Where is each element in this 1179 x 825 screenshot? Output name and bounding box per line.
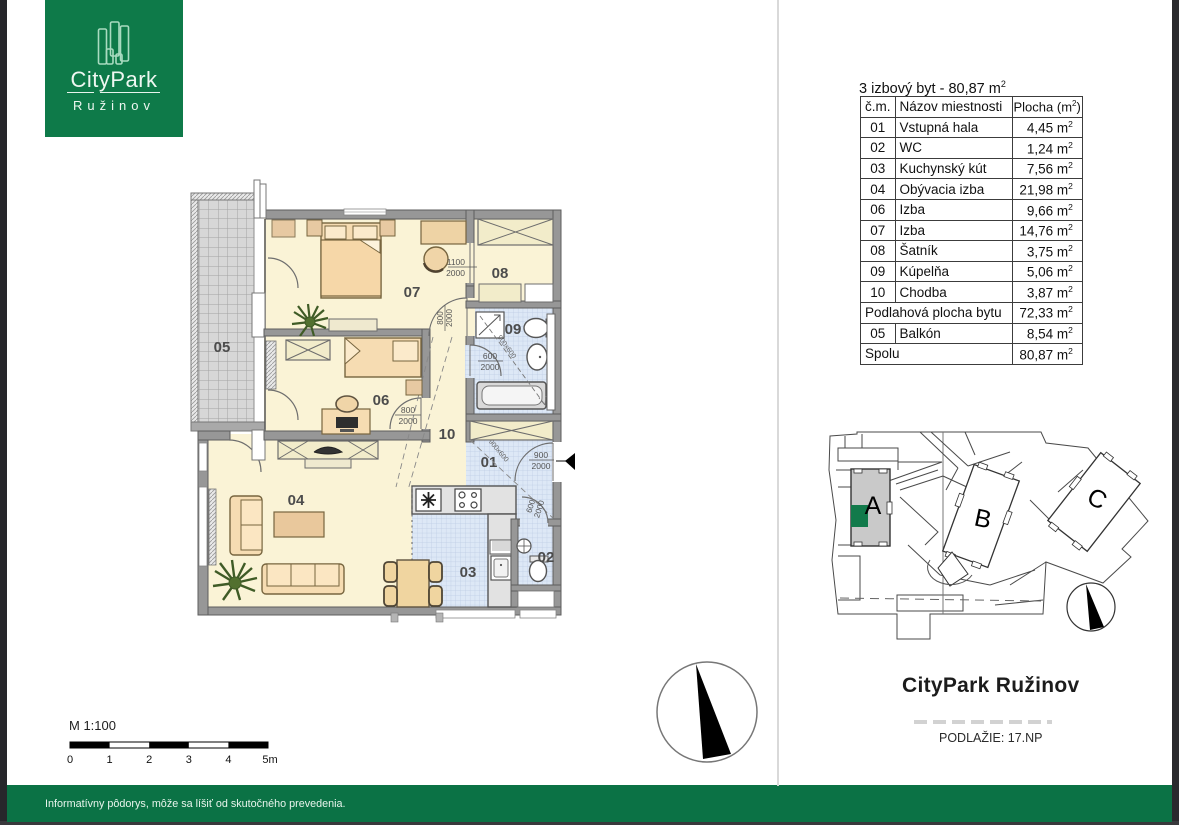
svg-text:2000: 2000 [481, 362, 500, 372]
svg-text:A: A [865, 492, 882, 520]
svg-text:01: 01 [481, 454, 498, 471]
svg-text:2000: 2000 [532, 461, 551, 471]
svg-text:04: 04 [288, 492, 305, 509]
svg-text:2000: 2000 [445, 309, 454, 327]
svg-text:2000: 2000 [399, 416, 418, 426]
svg-text:10: 10 [439, 426, 456, 443]
svg-text:09: 09 [505, 321, 522, 338]
svg-text:600: 600 [483, 351, 497, 361]
svg-text:1100: 1100 [447, 257, 466, 267]
svg-text:2000: 2000 [446, 268, 465, 278]
svg-text:900: 900 [534, 450, 548, 460]
svg-text:02: 02 [538, 549, 555, 566]
svg-text:07: 07 [404, 284, 421, 301]
svg-text:05: 05 [214, 339, 231, 356]
svg-text:03: 03 [460, 564, 477, 581]
svg-text:06: 06 [373, 392, 390, 409]
svg-text:08: 08 [492, 265, 509, 282]
svg-text:800: 800 [436, 311, 445, 325]
svg-text:800: 800 [401, 405, 415, 415]
